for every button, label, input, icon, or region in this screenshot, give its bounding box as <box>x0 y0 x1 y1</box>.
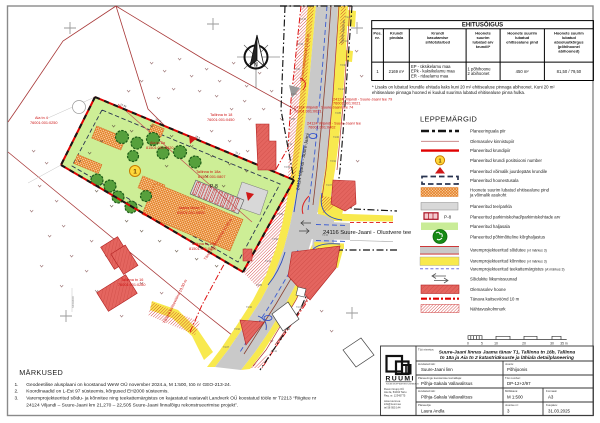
svg-text:73.85: 73.85 <box>256 284 263 287</box>
svg-text:Aia tn 2a: Aia tn 2a <box>150 141 166 145</box>
svg-text:74.00: 74.00 <box>333 136 340 139</box>
svg-text:DP-12+2/97: DP-12+2/97 <box>507 381 531 386</box>
svg-text:pindala: pindala <box>389 35 403 40</box>
svg-text:Planeerija:: Planeerija: <box>418 403 431 407</box>
svg-text:74.05: 74.05 <box>277 213 284 216</box>
svg-text:N: N <box>254 63 258 69</box>
svg-text:Huvitatud isik:: Huvitatud isik: <box>418 389 436 393</box>
svg-text:krundil*: krundil* <box>476 44 491 49</box>
svg-text:Varemprojekteeritud sõidu- ja: Varemprojekteeritud sõidu- ja kõnnitee n… <box>26 395 316 402</box>
svg-text:Varemprojekteeritud kõnnitee (: Varemprojekteeritud kõnnitee (vt märkus … <box>470 259 547 264</box>
svg-text:73.95: 73.95 <box>284 166 291 169</box>
svg-text:76001:001:0021: 76001:001:0021 <box>294 110 321 114</box>
svg-text:sihtotstarbed: sihtotstarbed <box>425 40 450 45</box>
svg-text:ER - ridaelamu maa: ER - ridaelamu maa <box>411 73 449 78</box>
svg-text:Planeeritud hoonestusala: Planeeritud hoonestusala <box>470 178 519 183</box>
svg-text:Huvitatud isik:: Huvitatud isik: <box>418 362 436 366</box>
svg-text:74.11: 74.11 <box>271 350 277 353</box>
svg-text:81501:001:0820: 81501:001:0820 <box>146 146 173 150</box>
svg-text:Planeeritud põhimõtteline kõrg: Planeeritud põhimõtteline kõrghaljastus <box>470 235 545 240</box>
svg-text:Varemprojekteeritud sõidutee (: Varemprojekteeritud sõidutee (vt märkus … <box>470 248 547 253</box>
svg-text:ehitisealune pind: ehitisealune pind <box>506 40 538 45</box>
svg-text:Planeeritud tee/parkla: Planeeritud tee/parkla <box>470 204 512 209</box>
svg-text:74.12: 74.12 <box>338 88 345 91</box>
svg-text:Nähtavuskolmnurk: Nähtavuskolmnurk <box>470 306 506 311</box>
svg-text:Formaat:: Formaat: <box>546 389 557 393</box>
svg-text:0: 0 <box>467 342 469 346</box>
svg-text:74.15: 74.15 <box>300 18 307 21</box>
svg-text:Aia tn 4: Aia tn 4 <box>35 116 48 120</box>
svg-text:Tänava kaitsevöönd 10 m: Tänava kaitsevöönd 10 m <box>470 297 520 302</box>
svg-text:24116 Suure-Jaani - Olustvere: 24116 Suure-Jaani - Olustvere tee <box>323 230 411 236</box>
svg-text:1: 1 <box>438 158 441 164</box>
svg-text:73.90: 73.90 <box>340 64 347 67</box>
svg-text:74.07: 74.07 <box>223 346 230 349</box>
svg-text:Planeeritud krundipiir: Planeeritud krundipiir <box>470 148 511 153</box>
svg-text:31.03.2025: 31.03.2025 <box>548 409 571 414</box>
svg-text:M 1:500: M 1:500 <box>507 395 523 400</box>
svg-text:Planeeritud parkimiskohad/park: Planeeritud parkimiskohad/parkimiskohtad… <box>470 214 561 219</box>
svg-text:Planeeringu koostamise korrald: Planeeringu koostamise korraldaja: <box>418 376 462 380</box>
svg-text:Suure-Jaani linn: Suure-Jaani linn <box>421 367 453 372</box>
svg-text:24124 Viljandi – Suure-Jaani k: 24124 Viljandi – Suure-Jaani km 21,270 –… <box>26 403 238 409</box>
svg-text:81501:001:0805: 81501:001:0805 <box>177 211 204 215</box>
svg-text:abihooned): abihooned) <box>558 49 580 54</box>
svg-text:81501:001:0807: 81501:001:0807 <box>198 175 225 179</box>
svg-text:Geodeetilise alusplaani on koo: Geodeetilise alusplaani on koostanud WeW… <box>26 381 231 388</box>
svg-text:74.12: 74.12 <box>265 260 272 263</box>
svg-text:2.: 2. <box>15 388 19 394</box>
svg-text:Töö number:: Töö number: <box>505 376 521 380</box>
svg-text:74.08: 74.08 <box>297 43 304 46</box>
svg-text:Planeeritud krundi positsiooni: Planeeritud krundi positsiooni number <box>470 158 542 163</box>
svg-text:Sõidukite liikumissuunad: Sõidukite liikumissuunad <box>470 277 518 282</box>
svg-text:74.07: 74.07 <box>326 184 333 187</box>
svg-text:* Lisaks on lubatud krundile e: * Lisaks on lubatud krundile ehitada kak… <box>372 85 555 90</box>
svg-text:73.92: 73.92 <box>234 328 241 331</box>
svg-text:Põhijoonis: Põhijoonis <box>507 367 528 372</box>
svg-text:Planeeringuala piir: Planeeringuala piir <box>470 129 506 134</box>
svg-text:P-8: P-8 <box>210 184 218 190</box>
svg-text:MÄRKUSED: MÄRKUSED <box>19 368 63 377</box>
svg-text:Planeeritud võimalik juurdepää: Planeeritud võimalik juurdepääs krundile <box>470 169 548 174</box>
svg-text:tel 58 955 144: tel 58 955 144 <box>384 405 401 409</box>
svg-text:Joonise nr:: Joonise nr: <box>505 403 519 407</box>
svg-text:73.88: 73.88 <box>289 118 296 121</box>
svg-text:Planeeritud haljasala: Planeeritud haljasala <box>470 224 511 229</box>
svg-text:tn 18a ja Aia tn 2 katastriüks: tn 18a ja Aia tn 2 katastriüksuste ja lä… <box>440 355 574 361</box>
svg-text:10: 10 <box>494 342 498 346</box>
svg-text:2 abihoonet: 2 abihoonet <box>468 71 491 76</box>
svg-text:76001:001:0280: 76001:001:0280 <box>118 283 145 287</box>
svg-text:76001:001:0450: 76001:001:0450 <box>207 118 234 122</box>
svg-text:35 m: 35 m <box>560 342 568 346</box>
svg-text:74.00: 74.00 <box>246 306 253 309</box>
svg-text:Jaama tänav T1: Jaama tänav T1 <box>178 206 205 210</box>
svg-text:73.90: 73.90 <box>272 238 279 241</box>
svg-text:Tallinna tn 16: Tallinna tn 16 <box>121 278 143 282</box>
svg-text:Töö nimetus:: Töö nimetus: <box>418 348 434 352</box>
svg-text:74.20: 74.20 <box>345 16 352 19</box>
svg-text:RUUMI GRUPP ARHITEKTUURIBÜROO: RUUMI GRUPP ARHITEKTUURIBÜROO <box>386 382 420 385</box>
svg-text:A3: A3 <box>548 395 554 400</box>
svg-text:EHITUSÕIGUS: EHITUSÕIGUS <box>462 22 503 29</box>
svg-text:74.11: 74.11 <box>286 143 292 146</box>
svg-text:Varemprojekteeritud teekattemä: Varemprojekteeritud teekattemärgistus (v… <box>470 267 564 272</box>
svg-text:nr.: nr. <box>375 35 380 40</box>
svg-text:74.02: 74.02 <box>291 93 298 96</box>
svg-text:2169 m²: 2169 m² <box>389 69 405 74</box>
svg-text:Laura Andla: Laura Andla <box>421 409 445 414</box>
svg-text:Põhja-Sakala Vallavalitsus: Põhja-Sakala Vallavalitsus <box>421 381 473 386</box>
svg-text:Koordinaadid on L-Est 97 süste: Koordinaadid on L-Est 97 süsteemis, kõrg… <box>26 388 168 394</box>
svg-text:P-8: P-8 <box>444 214 452 219</box>
svg-text:Tallinna tn 18a: Tallinna tn 18a <box>196 170 221 174</box>
svg-text:1: 1 <box>133 169 137 176</box>
svg-text:30: 30 <box>550 342 554 346</box>
svg-text:Kuupäev:: Kuupäev: <box>546 403 558 407</box>
svg-text:6469400: 6469400 <box>71 296 75 308</box>
svg-text:73.96: 73.96 <box>294 68 301 71</box>
svg-text:20: 20 <box>522 342 526 346</box>
svg-text:74.02: 74.02 <box>296 306 303 309</box>
svg-text:1.: 1. <box>15 382 19 388</box>
svg-text:Olemasolev kinnistupiir: Olemasolev kinnistupiir <box>470 139 515 144</box>
svg-text:76001:001:0402: 76001:001:0402 <box>308 126 335 130</box>
svg-text:Reg. nr. 12345775: Reg. nr. 12345775 <box>384 393 406 397</box>
svg-text:73.85: 73.85 <box>335 112 342 115</box>
svg-text:ja võimalik asukoht: ja võimalik asukoht <box>469 193 507 198</box>
svg-text:Põhja-Sakala Vallavalitsus: Põhja-Sakala Vallavalitsus <box>421 395 473 400</box>
svg-text:Joonis:: Joonis: <box>505 362 514 366</box>
svg-text:5: 5 <box>481 342 483 346</box>
svg-text:ehitisealuse pinnaga hooned ei: ehitisealuse pinnaga hooned ei kuulud su… <box>372 90 525 95</box>
svg-text:450 m²: 450 m² <box>516 69 530 74</box>
svg-text:81,50 / 79,50: 81,50 / 79,50 <box>557 69 582 74</box>
svg-text:Tallinna tn 18: Tallinna tn 18 <box>210 113 232 117</box>
svg-text:Mõõtkava:: Mõõtkava: <box>505 389 518 393</box>
svg-text:Suure-Jaani linnas Jaama tänav: Suure-Jaani linnas Jaama tänav T1, Talli… <box>439 350 576 356</box>
svg-text:3.: 3. <box>15 396 19 402</box>
svg-text:LEPPEMÄRGID: LEPPEMÄRGID <box>420 114 477 123</box>
svg-text:76001:001:0250: 76001:001:0250 <box>30 121 57 125</box>
svg-text:Olemasolev hoone: Olemasolev hoone <box>470 287 506 292</box>
svg-text:73.92: 73.92 <box>330 160 337 163</box>
